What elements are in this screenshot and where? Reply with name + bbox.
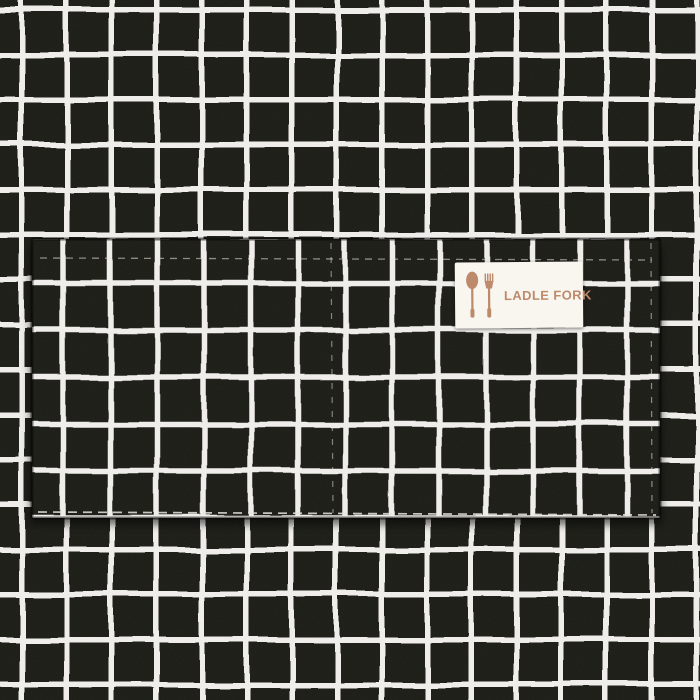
cutlery-icons	[464, 270, 497, 320]
fabric-graphic	[0, 0, 700, 700]
product-photo: LADLE FORK	[0, 0, 700, 700]
brand-text: LADLE FORK	[504, 287, 592, 303]
spoon-icon	[466, 272, 478, 318]
fork-icon	[485, 273, 494, 317]
brand-label: LADLE FORK	[455, 261, 584, 328]
